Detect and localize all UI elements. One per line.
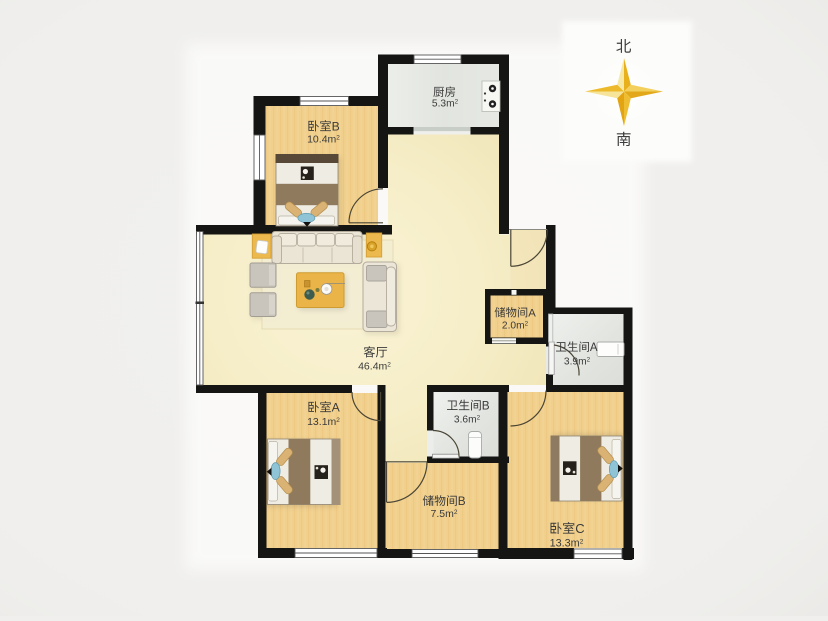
svg-text:A: A	[332, 401, 341, 415]
svg-text:A: A	[528, 308, 536, 320]
svg-text:A: A	[590, 342, 598, 354]
svg-text:B: B	[482, 399, 490, 413]
svg-text:5.3m2: 5.3m2	[432, 99, 459, 110]
svg-text:B: B	[458, 494, 466, 508]
svg-text:2.0m2: 2.0m2	[502, 321, 529, 332]
svg-text:B: B	[332, 120, 340, 134]
svg-text:3.9m2: 3.9m2	[564, 357, 591, 368]
svg-text:13.3m2: 13.3m2	[550, 538, 584, 550]
svg-text:13.1m2: 13.1m2	[307, 416, 340, 428]
svg-text:C: C	[575, 521, 584, 536]
svg-text:7.5m2: 7.5m2	[431, 508, 458, 520]
svg-text:3.6m2: 3.6m2	[454, 414, 481, 425]
svg-text:10.4m2: 10.4m2	[307, 134, 340, 146]
svg-text:46.4m2: 46.4m2	[358, 361, 391, 373]
